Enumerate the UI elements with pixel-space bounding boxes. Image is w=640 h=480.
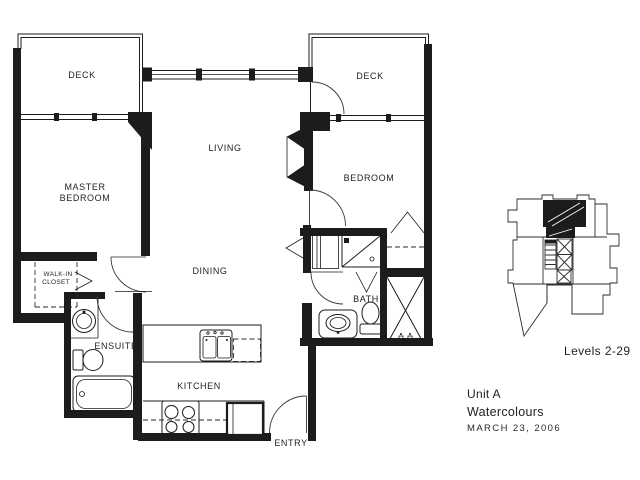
walkin-bottom-wall — [13, 313, 70, 323]
elevator-core — [545, 239, 572, 283]
window-mullion — [196, 69, 202, 81]
bedroom-label: BEDROOM — [344, 173, 395, 183]
deck-right-label: DECK — [356, 71, 383, 81]
kitchen-fixtures — [143, 325, 264, 435]
walk-in-closet-label-1: WALK-IN — [44, 271, 73, 278]
fireplace — [287, 128, 305, 186]
living-bedroom-wall — [304, 131, 313, 191]
window-mullion — [298, 67, 313, 82]
closet-chevron — [356, 272, 377, 292]
bath-toilet — [360, 302, 381, 334]
washer-dryer-closet — [387, 277, 424, 344]
title-block: Unit A Watercolours MARCH 23, 2006 — [467, 387, 561, 434]
range — [162, 401, 199, 434]
levels-caption: Levels 2-29 — [564, 344, 630, 358]
plan-date: MARCH 23, 2006 — [467, 423, 561, 434]
entry-door — [270, 396, 307, 433]
left-exterior-wall — [13, 48, 21, 323]
window-mullion — [386, 114, 391, 122]
south-east-wall — [300, 338, 433, 346]
dishwasher — [234, 339, 261, 362]
ensuite-label: ENSUITE — [94, 341, 137, 351]
master-bedroom-label-1: MASTER — [64, 182, 105, 192]
kitchen-sink — [200, 330, 232, 361]
corner-column-left — [128, 112, 152, 150]
bathtub — [73, 376, 135, 412]
door-swing — [310, 190, 346, 226]
bath-label: BATH — [353, 294, 379, 304]
entry-label: ENTRY — [274, 438, 307, 448]
walls — [13, 44, 433, 441]
deck-left-label: DECK — [68, 70, 95, 80]
living-label: LIVING — [208, 143, 241, 153]
highlighted-unit — [543, 200, 586, 238]
linen-closet — [313, 232, 339, 269]
project-name: Watercolours — [467, 405, 544, 419]
floor-plan-drawing: DECK DECK LIVING MASTER BEDROOM BEDROOM … — [0, 0, 640, 480]
bath-top-wall — [300, 228, 387, 236]
door-swing — [270, 396, 307, 433]
ensuite-door — [97, 296, 134, 332]
ensuite-top-wall — [64, 292, 105, 299]
master-bedroom-door — [111, 257, 146, 292]
walk-in-closet-label-2: CLOSET — [42, 279, 70, 286]
master-bedroom-window — [21, 113, 130, 121]
door-swing — [111, 257, 146, 292]
window-mullion — [336, 114, 341, 122]
kitchen-label: KITCHEN — [177, 381, 221, 391]
ensuite-vanity-sink — [71, 299, 98, 338]
bath-vanity-sink — [319, 310, 357, 338]
window-mullion — [143, 68, 152, 82]
window-mullion — [54, 113, 59, 121]
floor-plan-sheet: DECK DECK LIVING MASTER BEDROOM BEDROOM … — [0, 0, 640, 480]
ensuite-toilet — [73, 350, 103, 371]
door-swing — [97, 296, 133, 332]
living-window-band — [143, 67, 313, 82]
unit-plan: DECK DECK LIVING MASTER BEDROOM BEDROOM … — [13, 34, 433, 448]
entry-side-wall — [308, 346, 316, 441]
dining-label: DINING — [192, 266, 227, 276]
shower-head — [344, 238, 349, 243]
window-mullion — [92, 113, 97, 121]
leader-arrow — [75, 272, 92, 290]
shower-drain — [370, 257, 374, 261]
key-plan: Levels 2-29 — [508, 195, 630, 358]
master-bedroom-label-2: BEDROOM — [60, 193, 111, 203]
master-bottom-wall — [20, 252, 97, 261]
bath-fixtures — [286, 232, 381, 339]
closet-chevron — [391, 212, 424, 233]
door-swing — [312, 82, 344, 114]
door-swing — [311, 272, 343, 304]
tub-drain — [80, 392, 85, 397]
bedroom-closet — [387, 212, 424, 247]
shower — [342, 236, 380, 267]
unit-name: Unit A — [467, 387, 501, 401]
niche-arrow — [286, 238, 303, 258]
bedroom-door — [310, 190, 346, 226]
ensuite-left-wall — [64, 292, 71, 418]
right-exterior-wall — [424, 44, 432, 346]
refrigerator — [227, 403, 263, 435]
deck-door — [311, 82, 345, 114]
bath-door — [311, 272, 343, 304]
kitchen-west-wall — [133, 293, 142, 440]
window-mullion — [249, 69, 255, 81]
